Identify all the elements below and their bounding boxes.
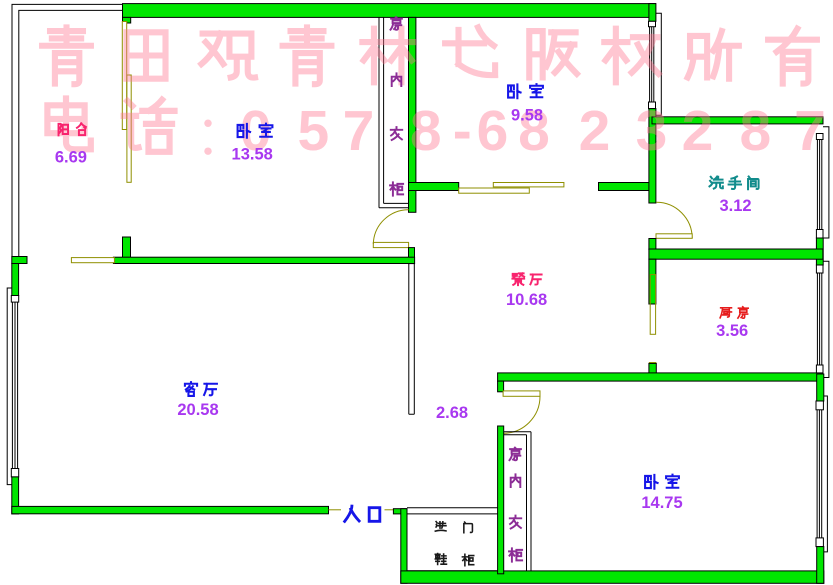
svg-text:3: 3: [636, 99, 668, 163]
svg-text:3.56: 3.56: [716, 322, 748, 340]
svg-text:9.58: 9.58: [511, 107, 543, 125]
svg-text:8: 8: [410, 99, 442, 163]
svg-text:6: 6: [477, 99, 509, 163]
svg-text:-: -: [453, 99, 472, 163]
svg-text:20.58: 20.58: [177, 401, 218, 419]
svg-text:7: 7: [794, 99, 826, 163]
svg-text:2: 2: [682, 99, 714, 163]
svg-text:8: 8: [740, 99, 772, 163]
svg-text:6.69: 6.69: [55, 149, 87, 167]
svg-text:2.68: 2.68: [436, 404, 468, 422]
svg-text:13.58: 13.58: [232, 145, 273, 163]
svg-text:7: 7: [343, 99, 375, 163]
svg-text:3.12: 3.12: [719, 197, 751, 215]
svg-text:14.75: 14.75: [641, 494, 682, 512]
svg-text:10.68: 10.68: [506, 291, 547, 309]
svg-text:5: 5: [297, 99, 329, 163]
svg-text:2: 2: [579, 99, 611, 163]
